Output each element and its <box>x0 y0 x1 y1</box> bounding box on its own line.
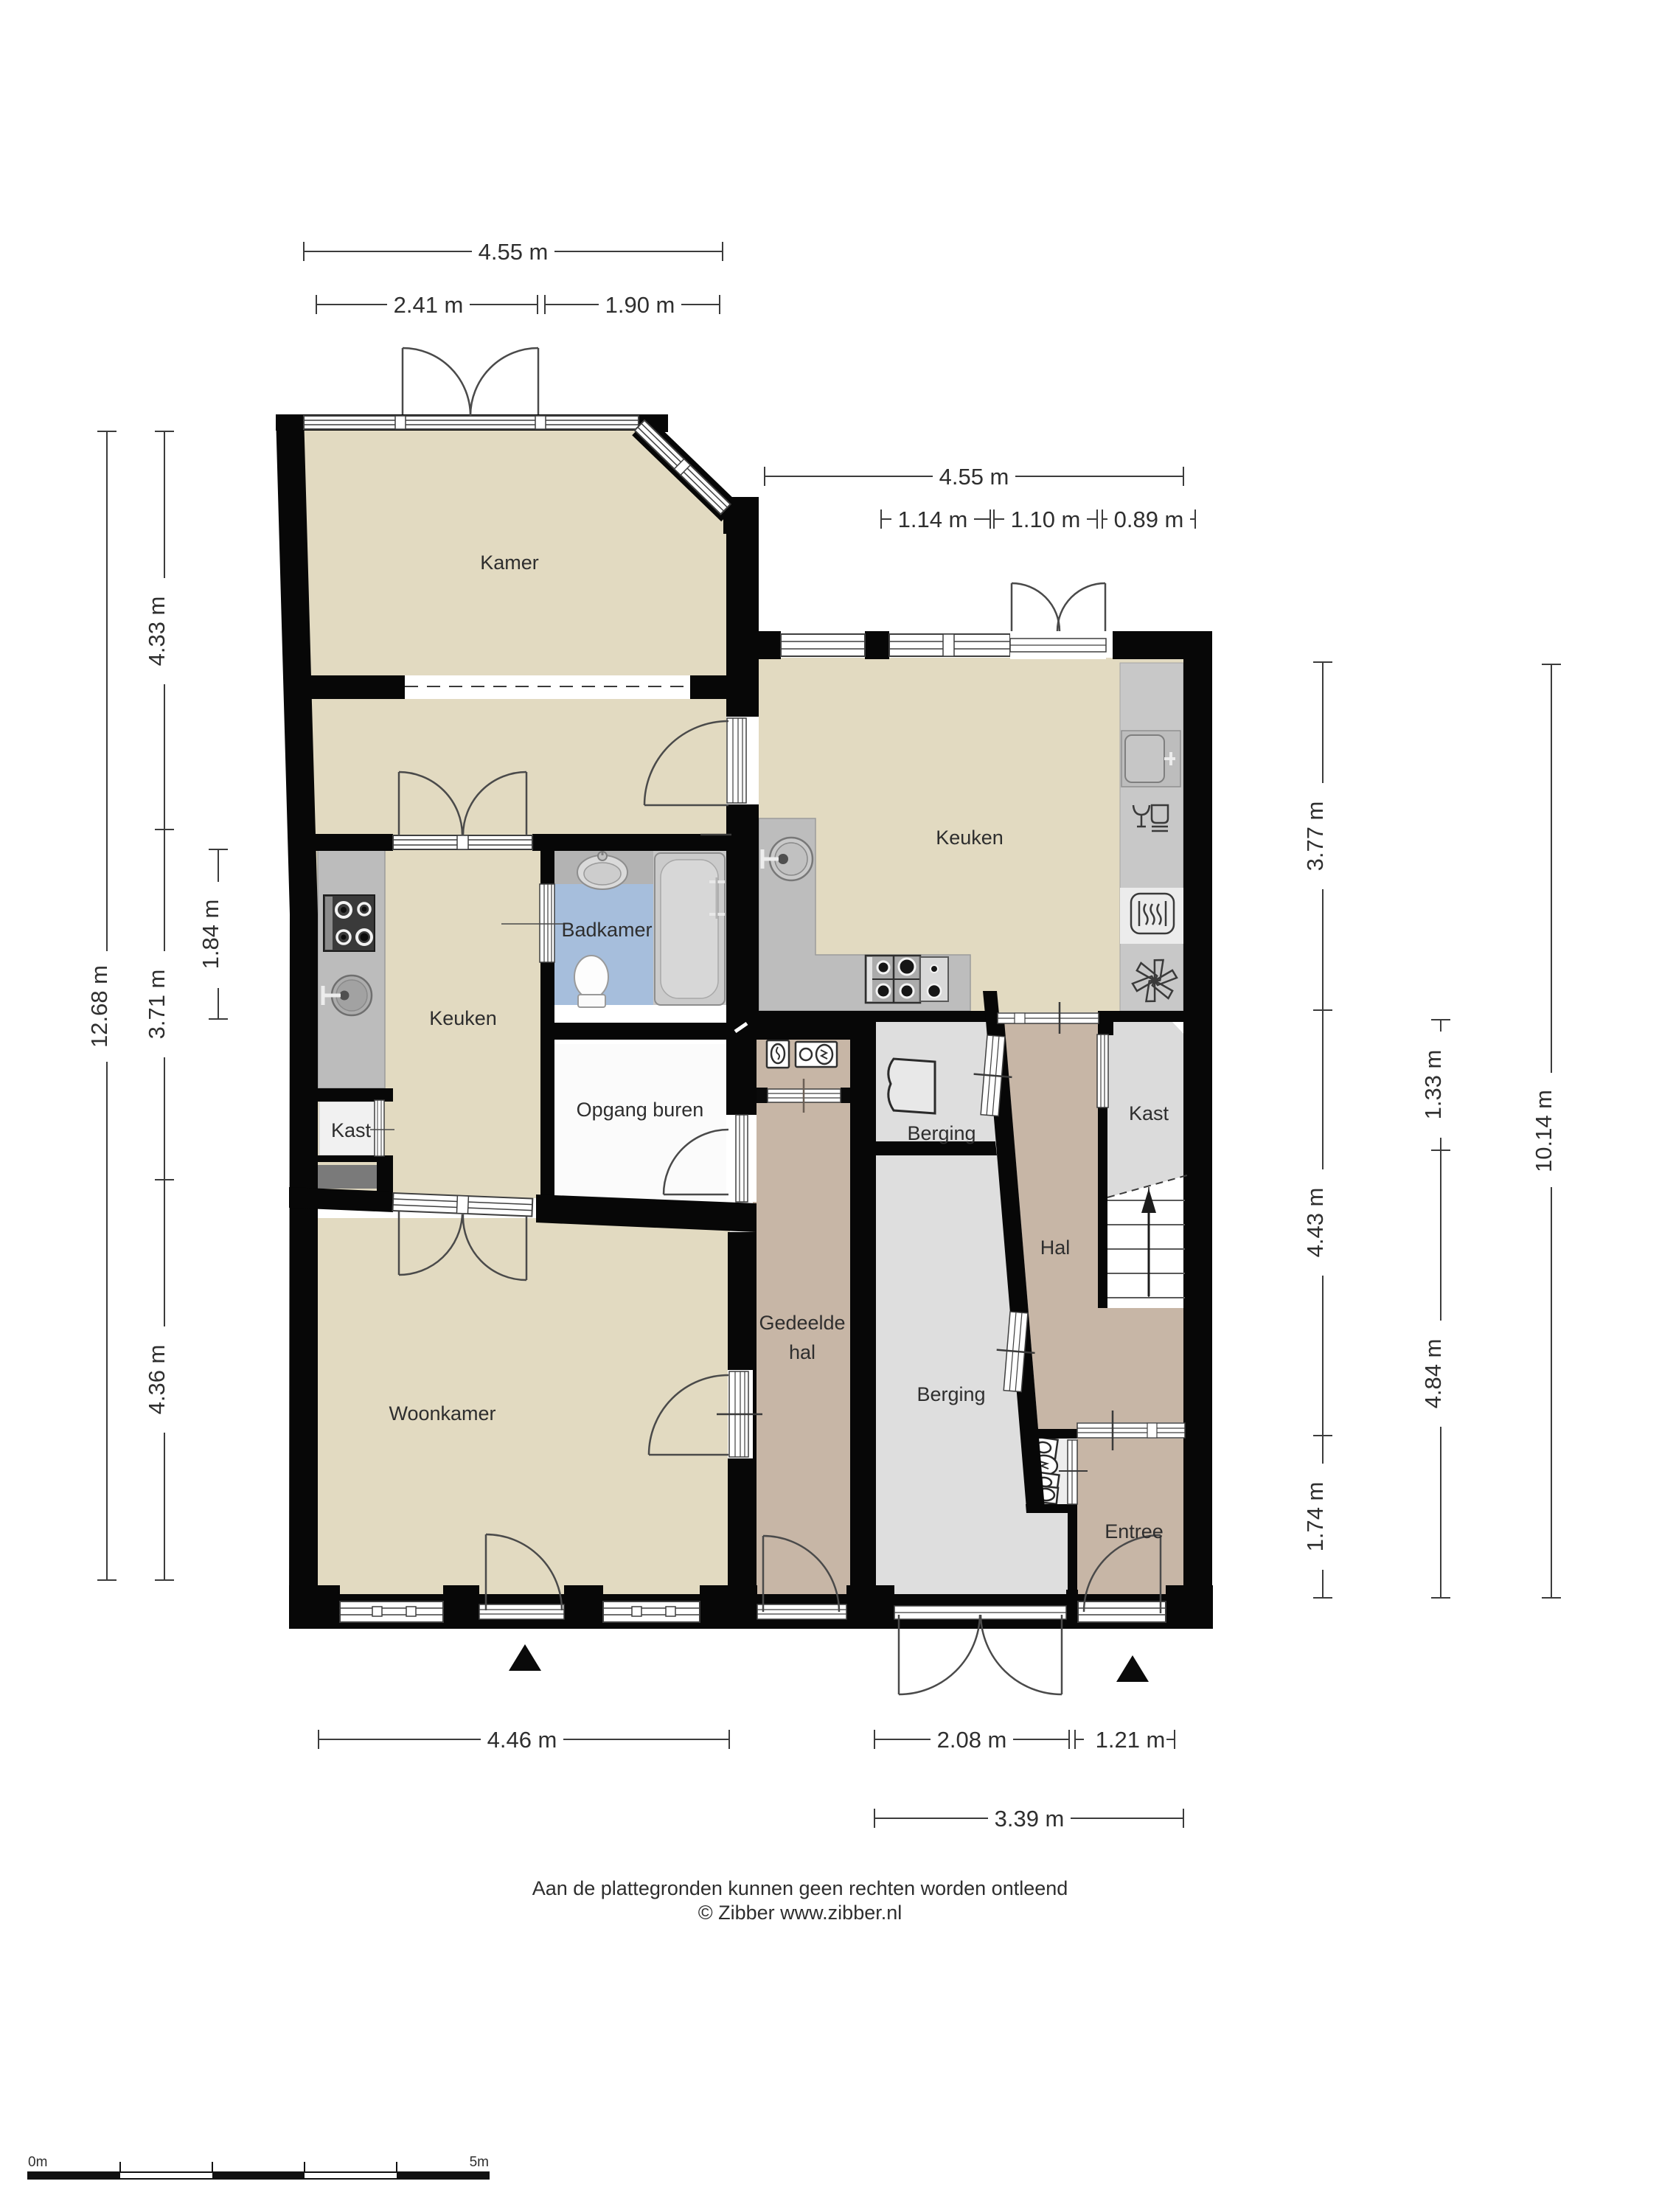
svg-text:5m: 5m <box>470 2154 489 2170</box>
svg-text:3.39 m: 3.39 m <box>995 1806 1065 1832</box>
svg-text:4.55 m: 4.55 m <box>939 464 1009 490</box>
svg-text:3.77 m: 3.77 m <box>1302 801 1328 872</box>
svg-text:Keuken: Keuken <box>936 827 1004 849</box>
svg-text:1.10 m: 1.10 m <box>1011 507 1081 532</box>
svg-text:1.33 m: 1.33 m <box>1420 1050 1446 1120</box>
svg-text:Aan de plattegronden kunnen ge: Aan de plattegronden kunnen geen rechten… <box>532 1877 1068 1899</box>
svg-text:2.41 m: 2.41 m <box>394 292 464 318</box>
svg-text:1.90 m: 1.90 m <box>605 292 675 318</box>
svg-text:hal: hal <box>789 1341 815 1363</box>
svg-text:Kamer: Kamer <box>480 552 539 574</box>
svg-text:© Zibber www.zibber.nl: © Zibber www.zibber.nl <box>698 1902 902 1924</box>
svg-text:1.14 m: 1.14 m <box>898 507 968 532</box>
svg-text:4.46 m: 4.46 m <box>487 1727 557 1753</box>
svg-text:4.55 m: 4.55 m <box>479 239 549 265</box>
svg-text:4.43 m: 4.43 m <box>1302 1188 1328 1258</box>
svg-text:Kast: Kast <box>331 1119 372 1141</box>
svg-text:Woonkamer: Woonkamer <box>389 1402 495 1425</box>
svg-text:Keuken: Keuken <box>429 1007 497 1029</box>
svg-text:2.08 m: 2.08 m <box>937 1727 1007 1753</box>
svg-text:Berging: Berging <box>907 1122 975 1144</box>
svg-text:10.14 m: 10.14 m <box>1531 1090 1557 1172</box>
svg-text:Badkamer: Badkamer <box>561 919 652 941</box>
svg-text:12.68 m: 12.68 m <box>86 965 112 1048</box>
svg-text:1.84 m: 1.84 m <box>198 900 223 970</box>
svg-text:Hal: Hal <box>1040 1237 1071 1259</box>
svg-text:4.84 m: 4.84 m <box>1420 1339 1446 1409</box>
svg-text:Entree: Entree <box>1105 1520 1164 1543</box>
svg-text:Opgang buren: Opgang buren <box>577 1099 704 1121</box>
svg-text:3.71 m: 3.71 m <box>144 970 170 1040</box>
svg-text:1.74 m: 1.74 m <box>1302 1482 1328 1552</box>
svg-text:4.33 m: 4.33 m <box>144 597 170 667</box>
svg-text:4.36 m: 4.36 m <box>144 1345 170 1415</box>
svg-text:0.89 m: 0.89 m <box>1114 507 1184 532</box>
svg-text:Berging: Berging <box>917 1383 985 1405</box>
svg-text:Gedeelde: Gedeelde <box>759 1312 845 1334</box>
svg-text:1.21 m: 1.21 m <box>1096 1727 1166 1753</box>
svg-text:0m: 0m <box>28 2154 47 2170</box>
svg-text:Kast: Kast <box>1129 1102 1169 1124</box>
